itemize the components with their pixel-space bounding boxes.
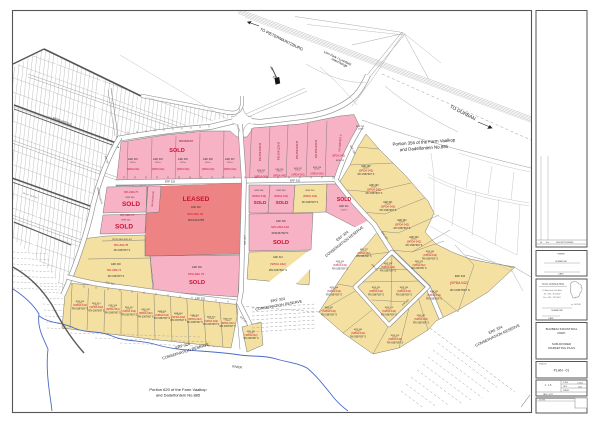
svg-text:RN 0367697 S: RN 0367697 S: [357, 256, 372, 258]
svg-text:TLOU CONSULTING: TLOU CONSULTING: [542, 283, 565, 286]
svg-text:2021: 2021: [578, 386, 582, 388]
svg-text:NOTES: NOTES: [539, 399, 546, 401]
svg-text:PARK: PARK: [558, 331, 566, 335]
svg-text:ERF 308: ERF 308: [255, 190, 264, 192]
svg-text:PROPOSED ERF 307: PROPOSED ERF 307: [112, 239, 133, 241]
svg-text:RN 0367697 S: RN 0367697 S: [244, 338, 259, 340]
svg-text:(SPDA 042): (SPDA 042): [367, 187, 382, 191]
svg-text:(SPDA 042): (SPDA 042): [381, 204, 396, 208]
svg-text:RN 0367697 S: RN 0367697 S: [326, 293, 342, 296]
svg-text:Tel : 033 - 347 0600: Tel : 033 - 347 0600: [544, 294, 561, 296]
svg-text:RN 0367697 S: RN 0367697 S: [366, 191, 383, 195]
svg-text:ERF 299: ERF 299: [336, 160, 345, 162]
svg-text:RN 0367697 S: RN 0367697 S: [394, 226, 411, 230]
svg-text:(SPDA 042): (SPDA 042): [273, 175, 286, 178]
svg-text:SPLUMA 140: SPLUMA 140: [271, 225, 289, 229]
svg-text:(SPDA 042): (SPDA 042): [303, 194, 317, 198]
svg-text:RN 0367697 S: RN 0367697 S: [108, 275, 125, 278]
svg-text:(SPDA 042): (SPDA 042): [254, 176, 267, 179]
svg-text:SOLD: SOLD: [337, 197, 352, 203]
svg-text:SOLD: SOLD: [273, 240, 289, 246]
svg-text:SPLUMA 76: SPLUMA 76: [120, 213, 135, 217]
svg-text:ERF 307: ERF 307: [225, 158, 235, 161]
svg-text:Rev: Rev: [546, 242, 549, 244]
svg-text:SPLUMA 76: SPLUMA 76: [188, 272, 205, 276]
svg-text:RN 0367697 S: RN 0367697 S: [350, 335, 366, 338]
svg-text:RN 0367697 S: RN 0367697 S: [72, 307, 88, 310]
svg-text:(SPDA 042): (SPDA 042): [274, 194, 288, 198]
svg-text:RN 0367697 S: RN 0367697 S: [88, 309, 104, 312]
svg-text:SOLD: SOLD: [189, 280, 205, 286]
svg-text:(SPDA 042): (SPDA 042): [152, 168, 165, 171]
svg-text:RN 0367697 S: RN 0367697 S: [302, 201, 319, 204]
svg-text:ERF 300: ERF 300: [276, 220, 286, 223]
svg-text:RN 0367697 S: RN 0367697 S: [121, 313, 137, 316]
svg-text:RN 0367697 S: RN 0367697 S: [358, 172, 375, 176]
svg-text:RN 2541236 B: RN 2541236 B: [277, 142, 281, 160]
svg-text:SPLUMA 46: SPLUMA 46: [187, 212, 204, 216]
svg-text:Fax : 033 - 347 0601: Fax : 033 - 347 0601: [543, 297, 560, 299]
svg-text:ERF 304: ERF 304: [153, 158, 163, 161]
svg-text:RN384697: RN384697: [179, 139, 194, 143]
svg-text:RN 0367697 S: RN 0367697 S: [380, 269, 396, 272]
svg-text:RN 0367697 S: RN 0367697 S: [138, 315, 154, 318]
svg-text:JAN / 2021: JAN / 2021: [543, 393, 554, 396]
svg-text:ERF 302: ERF 302: [191, 206, 201, 209]
svg-text:ERF 310: ERF 310: [306, 190, 315, 192]
svg-text:(SPDA 042): (SPDA 042): [224, 168, 237, 171]
svg-text:ERF 313: ERF 313: [273, 256, 283, 259]
svg-text:RN 0367697 S: RN 0367697 S: [269, 268, 287, 272]
svg-text:(SPDA 042): (SPDA 042): [270, 262, 286, 266]
svg-text:RN 0367697 S: RN 0367697 S: [413, 321, 429, 324]
svg-text:DATE: DATE: [558, 273, 564, 276]
svg-text:RN 0367697 S: RN 0367697 S: [220, 325, 236, 328]
svg-text:SOLD: SOLD: [169, 148, 185, 154]
svg-text:RN 0367697 S: RN 0367697 S: [154, 317, 170, 320]
svg-text:RN 0367697 S: RN 0367697 S: [114, 249, 131, 252]
svg-text:ERF 311: ERF 311: [339, 205, 349, 208]
svg-text:(SPDA 042): (SPDA 042): [413, 264, 426, 267]
svg-text:3 159 m²: 3 159 m²: [341, 209, 348, 212]
svg-text:1 : 1.5: 1 : 1.5: [545, 384, 552, 387]
svg-text:RN 2541236 B: RN 2541236 B: [295, 141, 299, 159]
svg-text:RN0412788: RN0412788: [188, 218, 204, 222]
svg-text:SPLUMA 7B: SPLUMA 7B: [114, 243, 129, 247]
svg-text:LEASED: LEASED: [183, 196, 210, 203]
svg-text:pr. 2017/08: pr. 2017/08: [571, 303, 580, 306]
svg-text:RN0367697S: RN0367697S: [272, 231, 289, 235]
svg-text:SOLD: SOLD: [254, 200, 267, 205]
svg-text:(SPDA 042): (SPDA 042): [395, 222, 410, 226]
svg-text:and Dadelfontein No.885: and Dadelfontein No.885: [156, 393, 201, 398]
svg-text:(SPDA 042): (SPDA 042): [407, 239, 422, 243]
svg-text:(SPDA 042): (SPDA 042): [252, 194, 266, 198]
svg-text:(SPDA 042): (SPDA 042): [310, 173, 323, 176]
svg-text:DATE: DATE: [548, 317, 554, 320]
svg-text:RN 0367697 S: RN 0367697 S: [368, 293, 384, 296]
svg-text:ERF 326: ERF 326: [165, 180, 176, 184]
svg-text:RN 0367697 S: RN 0367697 S: [187, 321, 203, 324]
svg-text:ERF 334: ERF 334: [455, 274, 466, 278]
svg-text:RN 0367697 S: RN 0367697 S: [332, 267, 348, 270]
svg-text:SPLUMA 74: SPLUMA 74: [107, 268, 122, 272]
svg-text:(SPDA 042): (SPDA 042): [358, 252, 371, 255]
svg-text:12 Montrose Park Blvd: 12 Montrose Park Blvd: [542, 289, 561, 292]
svg-text:RN 0367697 S: RN 0367697 S: [450, 288, 470, 292]
svg-text:RN 0367697 S: RN 0367697 S: [387, 341, 403, 344]
svg-text:RN 2541236 B: RN 2541236 B: [314, 140, 318, 158]
svg-text:1:2500: 1:2500: [577, 382, 583, 384]
svg-text:SOLD: SOLD: [115, 224, 133, 231]
svg-text:RN 0367697 S: RN 0367697 S: [321, 313, 337, 316]
svg-text:ERF 300: ERF 300: [192, 266, 202, 269]
svg-text:RN 2541236 B: RN 2541236 B: [258, 143, 262, 161]
svg-text:(SPDA 042): (SPDA 042): [359, 168, 374, 172]
svg-text:DESCRIPTION/DATE: DESCRIPTION/DATE: [556, 241, 574, 244]
svg-text:PLAN No: PLAN No: [539, 363, 547, 366]
svg-text:ERF 327: ERF 327: [195, 298, 205, 301]
svg-text:(SPDA 042): (SPDA 042): [202, 168, 215, 171]
svg-text:(SPDA 042): (SPDA 042): [291, 174, 304, 177]
svg-text:OWNER: OWNER: [557, 254, 565, 256]
svg-text:ERF 300: ERF 300: [126, 197, 135, 199]
svg-text:ERF 300: ERF 300: [122, 220, 131, 222]
svg-text:SPLUMA 75: SPLUMA 75: [124, 190, 139, 194]
svg-text:PLAN - 01: PLAN - 01: [554, 369, 570, 373]
svg-text:RN 0367697 S: RN 0367697 S: [203, 323, 219, 326]
svg-text:ERF 306: ERF 306: [203, 158, 213, 161]
svg-text:ERF 328: ERF 328: [243, 235, 246, 245]
svg-text:RN 0367697 S: RN 0367697 S: [412, 268, 427, 270]
svg-text:(SPDA 042): (SPDA 042): [177, 168, 190, 171]
svg-text:RN 0367697 S: RN 0367697 S: [426, 297, 442, 300]
svg-text:MARKETING PLAN: MARKETING PLAN: [548, 346, 575, 350]
svg-text:SOLD: SOLD: [276, 200, 289, 205]
svg-text:(SPDA 042): (SPDA 042): [332, 155, 345, 158]
svg-text:ERF 298: ERF 298: [356, 126, 365, 128]
svg-text:(SPDA 042): (SPDA 042): [127, 168, 140, 171]
svg-text:RN 0367697 S: RN 0367697 S: [396, 293, 412, 296]
svg-text:RN 0367697 S: RN 0367697 S: [170, 319, 186, 322]
svg-text:RN 0367697 S: RN 0367697 S: [422, 257, 438, 260]
svg-text:ERF 309: ERF 309: [277, 190, 286, 192]
svg-text:SIGNATURE: SIGNATURE: [555, 260, 567, 263]
svg-text:ERF 300: ERF 300: [111, 263, 121, 266]
svg-text:No: No: [540, 242, 542, 244]
svg-text:(SPDA 042): (SPDA 042): [245, 334, 258, 337]
svg-text:RN 0367697 S: RN 0367697 S: [381, 313, 397, 316]
svg-text:(SPDA 042): (SPDA 042): [450, 281, 468, 285]
svg-text:ERF 303: ERF 303: [128, 158, 138, 161]
svg-text:RN 0367697 S: RN 0367697 S: [406, 243, 423, 247]
svg-text:SOLD: SOLD: [122, 201, 140, 208]
svg-text:ERF 305: ERF 305: [178, 158, 188, 161]
svg-text:ERF 326: ERF 326: [290, 179, 301, 183]
svg-text:RN 0367697 S: RN 0367697 S: [105, 311, 121, 314]
svg-text:RN 0367697 S: RN 0367697 S: [380, 208, 397, 212]
svg-text:SIGNATURE: SIGNATURE: [551, 309, 563, 312]
svg-text:Portion 620 of the Farm Vaalko: Portion 620 of the Farm Vaalkop: [149, 387, 207, 392]
